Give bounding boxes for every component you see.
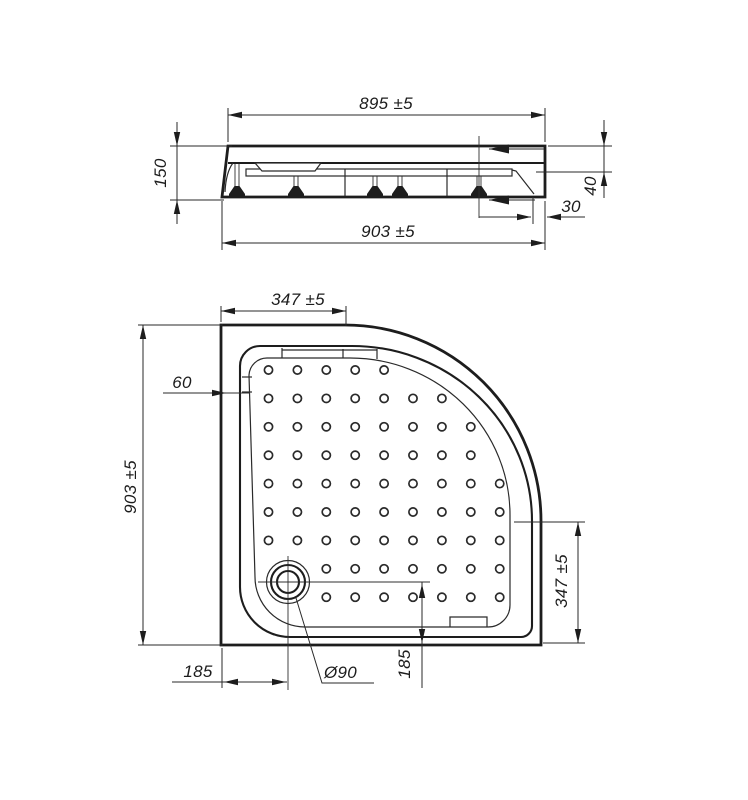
anti-slip-dot	[438, 565, 446, 573]
anti-slip-dot	[380, 565, 388, 573]
anti-slip-dot	[351, 508, 359, 516]
anti-slip-dot	[409, 508, 417, 516]
anti-slip-dot	[409, 451, 417, 459]
anti-slip-dot	[380, 366, 388, 374]
anti-slip-dot	[438, 593, 446, 601]
anti-slip-dot	[351, 593, 359, 601]
anti-slip-dot	[293, 508, 301, 516]
anti-slip-dots	[264, 366, 503, 601]
dim-label: 185	[395, 649, 414, 679]
anti-slip-dot	[264, 480, 272, 488]
anti-slip-dot	[409, 394, 417, 402]
leg	[392, 176, 408, 196]
dim-apron-height: 40	[536, 120, 612, 198]
anti-slip-dot	[293, 423, 301, 431]
anti-slip-dot	[496, 593, 504, 601]
anti-slip-dot	[380, 593, 388, 601]
dim-label: 185	[183, 662, 213, 681]
anti-slip-dot	[322, 366, 330, 374]
anti-slip-dot	[380, 508, 388, 516]
anti-slip-dot	[322, 565, 330, 573]
dim-panel-offset: 30	[479, 197, 585, 224]
anti-slip-dot	[438, 394, 446, 402]
apron-slant-edge	[512, 170, 534, 194]
anti-slip-dot	[322, 480, 330, 488]
anti-slip-dot	[496, 536, 504, 544]
anti-slip-dot	[380, 480, 388, 488]
anti-slip-dot	[380, 451, 388, 459]
anti-slip-dot	[293, 536, 301, 544]
anti-slip-dot	[322, 593, 330, 601]
anti-slip-dot	[322, 536, 330, 544]
anti-slip-dot	[409, 423, 417, 431]
leader-drain-diameter: Ø90	[296, 598, 374, 683]
anti-slip-dot	[438, 480, 446, 488]
anti-slip-dot	[496, 480, 504, 488]
anti-slip-dot	[351, 536, 359, 544]
anti-slip-dot	[322, 451, 330, 459]
dim-side-top-width: 895 ±5	[228, 94, 545, 142]
dim-label: 60	[172, 373, 192, 392]
anti-slip-dot	[380, 394, 388, 402]
dim-label: 347 ±5	[552, 554, 571, 608]
basin-step-top	[282, 348, 377, 359]
anti-slip-dot	[264, 536, 272, 544]
anti-slip-dot	[322, 394, 330, 402]
dim-label: Ø90	[323, 663, 357, 682]
dim-label: 347 ±5	[271, 290, 325, 309]
anti-slip-dot	[264, 423, 272, 431]
anti-slip-dot	[467, 593, 475, 601]
anti-slip-dot	[409, 536, 417, 544]
anti-slip-dot	[293, 451, 301, 459]
anti-slip-dot	[264, 508, 272, 516]
anti-slip-dot	[293, 366, 301, 374]
anti-slip-dot	[409, 593, 417, 601]
leader-rim-width: 60	[163, 373, 249, 393]
dim-drain-offset-x: 185	[172, 648, 287, 688]
dim-label: 903 ±5	[121, 460, 140, 514]
anti-slip-dot	[438, 451, 446, 459]
anti-slip-dot	[467, 536, 475, 544]
dim-plan-right-edge: 347 ±5	[514, 522, 585, 643]
dim-label: 895 ±5	[359, 94, 413, 113]
dim-label: 150	[151, 158, 170, 188]
anti-slip-dot	[496, 565, 504, 573]
anti-slip-dot	[351, 451, 359, 459]
plan-view: 347 ±5 903 ±5 347 ±5 185	[121, 290, 585, 690]
anti-slip-dot	[322, 508, 330, 516]
dim-label: 40	[581, 176, 600, 196]
basin-step-left	[242, 377, 252, 392]
anti-slip-dot	[264, 366, 272, 374]
anti-slip-dot	[467, 423, 475, 431]
dim-label: 30	[561, 197, 581, 216]
anti-slip-dot	[409, 480, 417, 488]
anti-slip-dot	[380, 423, 388, 431]
anti-slip-dot	[380, 536, 388, 544]
anti-slip-dot	[293, 480, 301, 488]
anti-slip-dot	[467, 451, 475, 459]
technical-drawing-canvas: 895 ±5 150 903 ±5 40	[0, 0, 748, 800]
side-view: 895 ±5 150 903 ±5 40	[151, 94, 612, 250]
anti-slip-dot	[351, 565, 359, 573]
anti-slip-dot	[496, 508, 504, 516]
anti-slip-dot	[351, 480, 359, 488]
anti-slip-dot	[438, 423, 446, 431]
anti-slip-dot	[322, 423, 330, 431]
anti-slip-dot	[438, 508, 446, 516]
basin-dish-profile	[255, 163, 321, 171]
anti-slip-dot	[351, 394, 359, 402]
anti-slip-dot	[264, 394, 272, 402]
dim-side-bottom-width: 903 ±5	[222, 201, 545, 250]
leg	[367, 176, 383, 196]
anti-slip-dot	[438, 536, 446, 544]
anti-slip-dot	[293, 394, 301, 402]
anti-slip-dot	[467, 480, 475, 488]
dim-plan-top-edge: 347 ±5	[221, 290, 346, 326]
anti-slip-dot	[467, 508, 475, 516]
leg	[229, 164, 245, 196]
anti-slip-dot	[467, 565, 475, 573]
dim-label: 903 ±5	[361, 222, 415, 241]
anti-slip-dot	[264, 451, 272, 459]
anti-slip-dot	[409, 565, 417, 573]
dim-side-height: 150	[151, 122, 232, 224]
basin-step-bottom	[450, 617, 487, 627]
leg	[288, 176, 304, 196]
anti-slip-dot	[351, 366, 359, 374]
drawing-svg: 895 ±5 150 903 ±5 40	[0, 0, 748, 800]
anti-slip-dot	[351, 423, 359, 431]
